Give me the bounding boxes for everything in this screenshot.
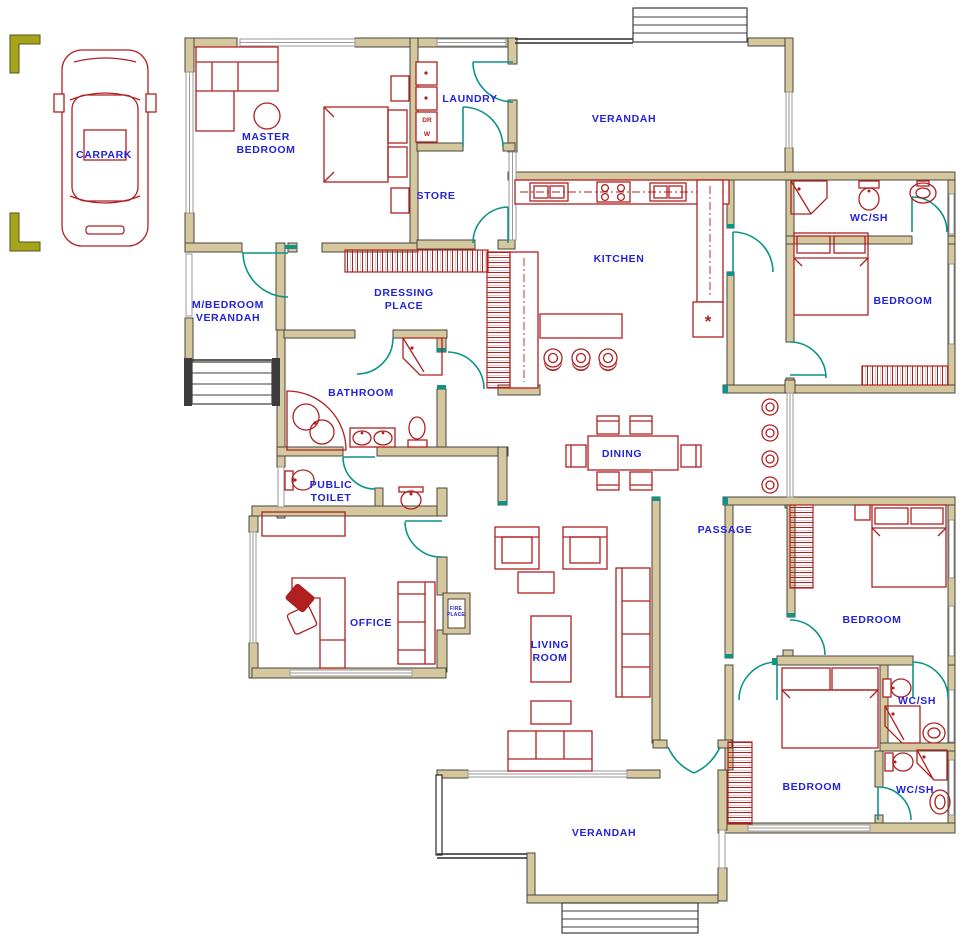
door-bedroom-ne <box>790 342 826 378</box>
door-entrance-double <box>668 747 720 773</box>
room-label-living-2: ROOM <box>532 652 567 664</box>
bed-ne <box>794 233 868 315</box>
basin-ne <box>910 181 936 203</box>
room-label-store: STORE <box>417 190 456 202</box>
room-label-bedroom-ne: BEDROOM <box>873 295 932 307</box>
nightstand-bottom <box>391 188 409 213</box>
room-label-public-1: PUBLIC <box>310 479 353 491</box>
plant-2 <box>762 425 778 441</box>
sofa-3seat <box>508 731 592 771</box>
door-bathroom-north <box>357 338 393 374</box>
wcsh-s: WC/SH <box>885 750 950 814</box>
room-label-passage: PASSAGE <box>698 524 753 536</box>
door-wcsh-mid <box>913 662 948 698</box>
floor-plan-page: FIRE PLACE <box>0 0 962 941</box>
kitchen-island <box>540 314 622 338</box>
door-laundry-store <box>463 107 503 147</box>
wardrobe-ne <box>862 366 948 385</box>
room-label-dressing-2: PLACE <box>385 300 424 312</box>
washer-label: W <box>424 131 431 138</box>
room-label-verandah-bottom: VERANDAH <box>572 827 636 839</box>
room-label-master-2: BEDROOM <box>236 144 295 156</box>
room-label-dining: DINING <box>602 448 642 460</box>
office: OFFICE <box>262 512 435 668</box>
door-bathroom-east <box>448 352 484 389</box>
bed-mid <box>855 505 946 587</box>
bed-s <box>782 668 878 748</box>
room-label-kitchen: KITCHEN <box>594 253 645 265</box>
bar-stools <box>544 349 617 371</box>
cooker-symbol: * <box>705 312 712 331</box>
room-label-bedroom-s: BEDROOM <box>782 781 841 793</box>
door-kitchen-lobby <box>733 232 773 272</box>
carpark-marker-top <box>10 35 40 73</box>
carpark: CARPARK <box>10 35 156 251</box>
door-bedroom-mid <box>790 620 825 655</box>
dryer-label: DR <box>422 117 432 124</box>
basin-mid <box>923 723 945 743</box>
room-label-wcsh-mid: WC/SH <box>898 695 936 707</box>
fireplace: FIRE PLACE <box>443 593 470 634</box>
steps-top <box>633 8 747 42</box>
door-office <box>405 521 442 557</box>
plant-1 <box>762 399 778 415</box>
armchair-1 <box>495 527 539 569</box>
wardrobe-side <box>487 252 510 388</box>
shower-ne <box>791 181 827 214</box>
dressing-counter <box>510 252 538 388</box>
shower-s <box>917 750 947 780</box>
room-label-bathroom: BATHROOM <box>328 387 394 399</box>
wcsh-mid: WC/SH <box>883 679 945 743</box>
fireplace-label-2: PLACE <box>447 612 465 618</box>
car <box>54 50 156 246</box>
plant-4 <box>762 477 778 493</box>
armchair-2 <box>563 527 607 569</box>
office-sofa <box>398 582 435 664</box>
tv-unit <box>616 568 650 697</box>
master-bed <box>324 76 409 213</box>
sectional-sofa <box>196 47 278 131</box>
kitchen: * KITCHEN <box>515 180 729 371</box>
room-label-carpark: CARPARK <box>76 149 132 161</box>
nightstand-top <box>391 76 409 101</box>
twin-basins <box>350 428 395 447</box>
room-label-laundry: LAUNDRY <box>442 93 497 105</box>
plant-3 <box>762 451 778 467</box>
door-store <box>473 207 508 243</box>
room-label-master-1: MASTER <box>242 131 290 143</box>
bedroom-s: BEDROOM <box>728 668 878 824</box>
bedroom-ne: BEDROOM <box>794 233 948 385</box>
passage: PASSAGE <box>698 399 778 536</box>
dining: DINING <box>566 416 701 490</box>
living-room: LIVING ROOM <box>495 527 650 771</box>
laundry: DR W LAUNDRY <box>416 62 498 142</box>
steps-mbv <box>184 358 280 406</box>
round-table <box>254 103 280 129</box>
steps-bottom <box>562 903 698 933</box>
room-label-public-2: TOILET <box>311 492 352 504</box>
corner-bathtub <box>287 391 346 450</box>
room-label-office: OFFICE <box>350 617 392 629</box>
master-bedroom: MASTER BEDROOM <box>196 47 409 213</box>
wardrobe-s <box>728 742 752 824</box>
door-bedroom-s <box>739 662 777 700</box>
carpark-marker-bottom <box>10 213 40 251</box>
side-table-1 <box>518 572 554 593</box>
wardrobe-mid <box>790 505 813 588</box>
room-label-bedroom-mid: BEDROOM <box>842 614 901 626</box>
room-label-verandah-top: VERANDAH <box>592 113 656 125</box>
room-label-wcsh-ne: WC/SH <box>850 212 888 224</box>
room-label-dressing-1: DRESSING <box>374 287 434 299</box>
room-label-living-1: LIVING <box>531 639 570 651</box>
bathroom-shower <box>403 338 442 375</box>
bathroom: BATHROOM <box>287 338 442 450</box>
bedroom-mid: BEDROOM <box>790 505 946 626</box>
side-table-2 <box>531 701 571 724</box>
wcsh-ne: WC/SH <box>791 181 936 224</box>
shower-mid <box>885 706 920 743</box>
room-label-mbv-1: M/BEDROOM <box>192 299 264 311</box>
floor-plan-drawing: FIRE PLACE <box>0 0 962 941</box>
wardrobe-top <box>345 250 488 272</box>
toilet-s <box>885 753 913 771</box>
public-toilet: PUBLIC TOILET <box>285 470 423 509</box>
toilet-ne <box>859 181 879 210</box>
bathroom-toilet <box>408 417 427 447</box>
room-label-mbv-2: VERANDAH <box>196 312 260 324</box>
room-label-wcsh-s: WC/SH <box>896 784 934 796</box>
